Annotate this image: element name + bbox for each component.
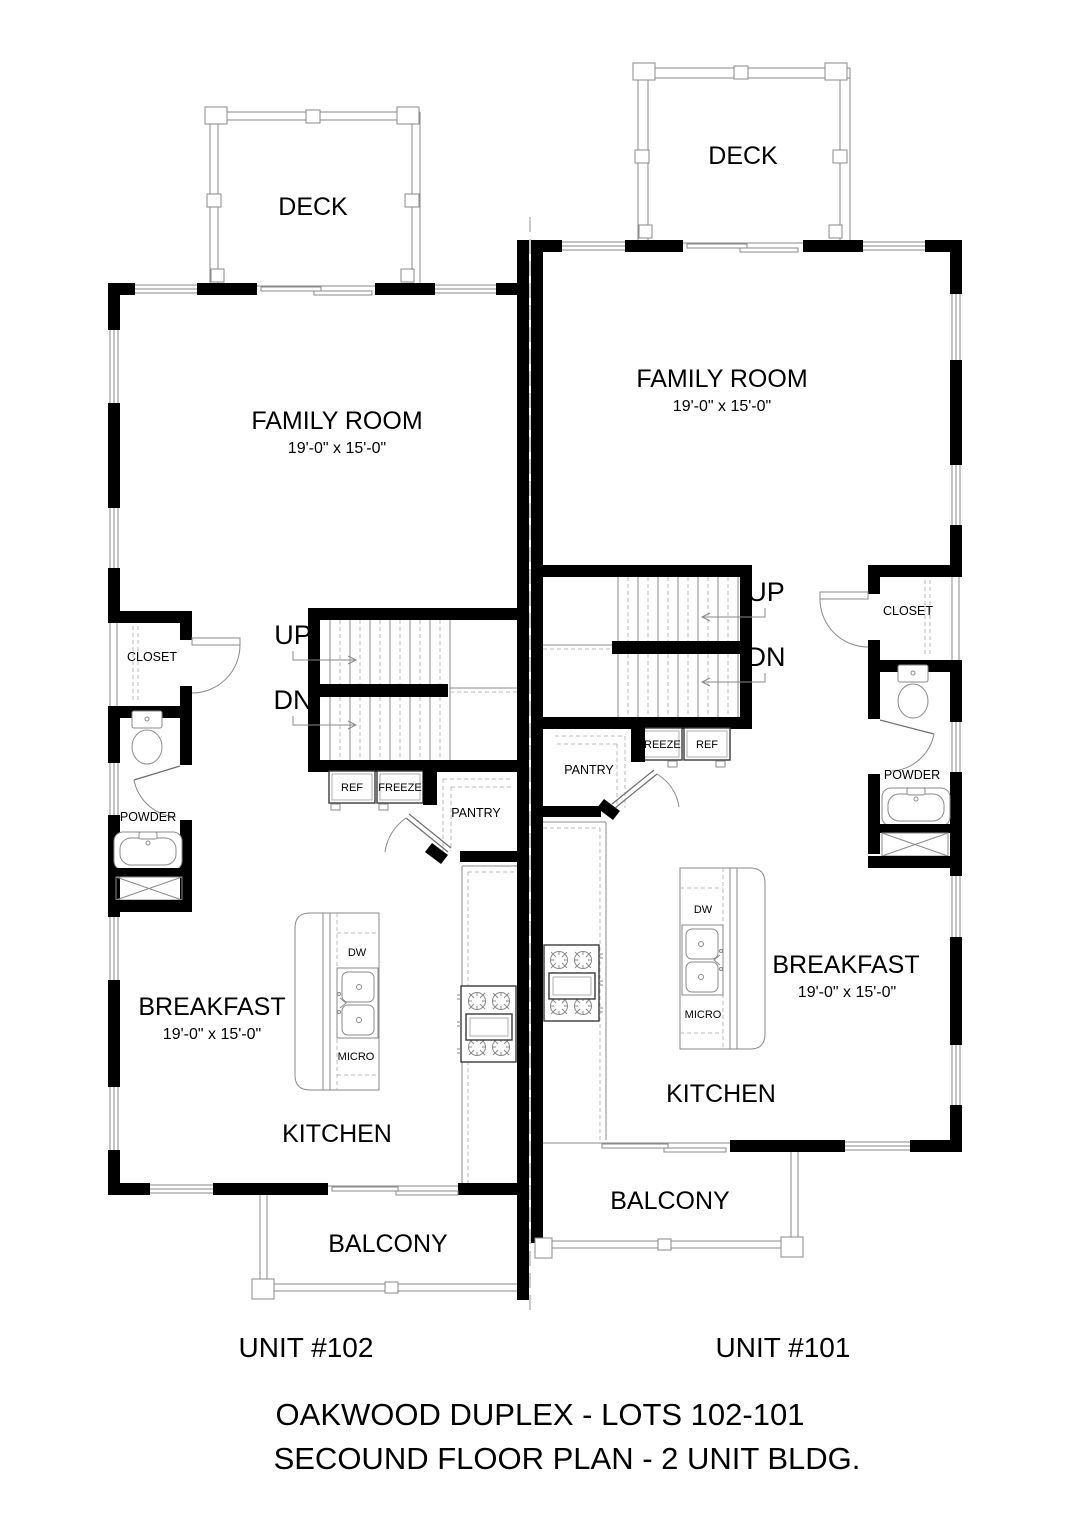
floorplan-page: DECK xyxy=(0,0,1080,1535)
floor-plan-canvas: DECK xyxy=(0,0,1080,1535)
up-label-101: UP xyxy=(747,577,785,607)
dw-label-102: DW xyxy=(348,947,367,959)
balcony-slider-101 xyxy=(543,1140,730,1152)
micro-label-101: MICRO xyxy=(685,1009,722,1021)
family-room-label-102: FAMILY ROOM xyxy=(251,407,422,435)
closet-label-102: CLOSET xyxy=(127,650,177,664)
cooktop-101 xyxy=(544,945,603,1021)
ref-label-102: REF xyxy=(341,782,363,794)
kitchen-label-102: KITCHEN xyxy=(282,1120,392,1148)
kitchen-label-101: KITCHEN xyxy=(666,1080,776,1108)
balcony-label-101: BALCONY xyxy=(610,1187,730,1215)
up-label-102: UP xyxy=(274,620,312,650)
title-line2: SECOUND FLOOR PLAN - 2 UNIT BLDG. xyxy=(274,1441,861,1476)
micro-label-102: MICRO xyxy=(338,1051,375,1063)
closet-label-101: CLOSET xyxy=(883,604,933,618)
deck-label-102: DECK xyxy=(278,193,348,221)
ref-label-101: REF xyxy=(696,739,718,751)
toilet-101 xyxy=(898,665,928,718)
title-line1: OAKWOOD DUPLEX - LOTS 102-101 xyxy=(276,1397,805,1432)
bathtub-102 xyxy=(114,832,182,870)
bathtub-101 xyxy=(882,788,950,826)
deck-slider-101 xyxy=(683,240,803,252)
deck-slider-102 xyxy=(257,283,375,295)
balcony-slider-102 xyxy=(328,1183,458,1195)
unit-label-101: UNIT #101 xyxy=(716,1332,851,1363)
family-room-label-101: FAMILY ROOM xyxy=(636,365,807,393)
freeze-label-102: FREEZE xyxy=(378,782,421,794)
pantry-label-102: PANTRY xyxy=(451,806,501,820)
breakfast-label-101: BREAKFAST xyxy=(772,951,919,979)
pantry-label-101: PANTRY xyxy=(564,763,614,777)
balcony-label-102: BALCONY xyxy=(328,1230,448,1258)
powder-label-102: POWDER xyxy=(120,810,176,824)
breakfast-label-102: BREAKFAST xyxy=(138,993,285,1021)
unit-label-102: UNIT #102 xyxy=(239,1332,374,1363)
family-room-dims-102: 19'-0" x 15'-0" xyxy=(288,440,386,457)
dn-label-102: DN xyxy=(274,685,313,715)
breakfast-dims-101: 19'-0" x 15'-0" xyxy=(798,984,896,1001)
toilet-102 xyxy=(132,711,162,764)
powder-label-101: POWDER xyxy=(884,768,940,782)
dn-label-101: DN xyxy=(747,642,786,672)
deck-label-101: DECK xyxy=(708,142,778,170)
dw-label-101: DW xyxy=(694,904,713,916)
breakfast-dims-102: 19'-0" x 15'-0" xyxy=(163,1026,261,1043)
cooktop-102 xyxy=(457,986,516,1062)
family-room-dims-101: 19'-0" x 15'-0" xyxy=(673,398,771,415)
